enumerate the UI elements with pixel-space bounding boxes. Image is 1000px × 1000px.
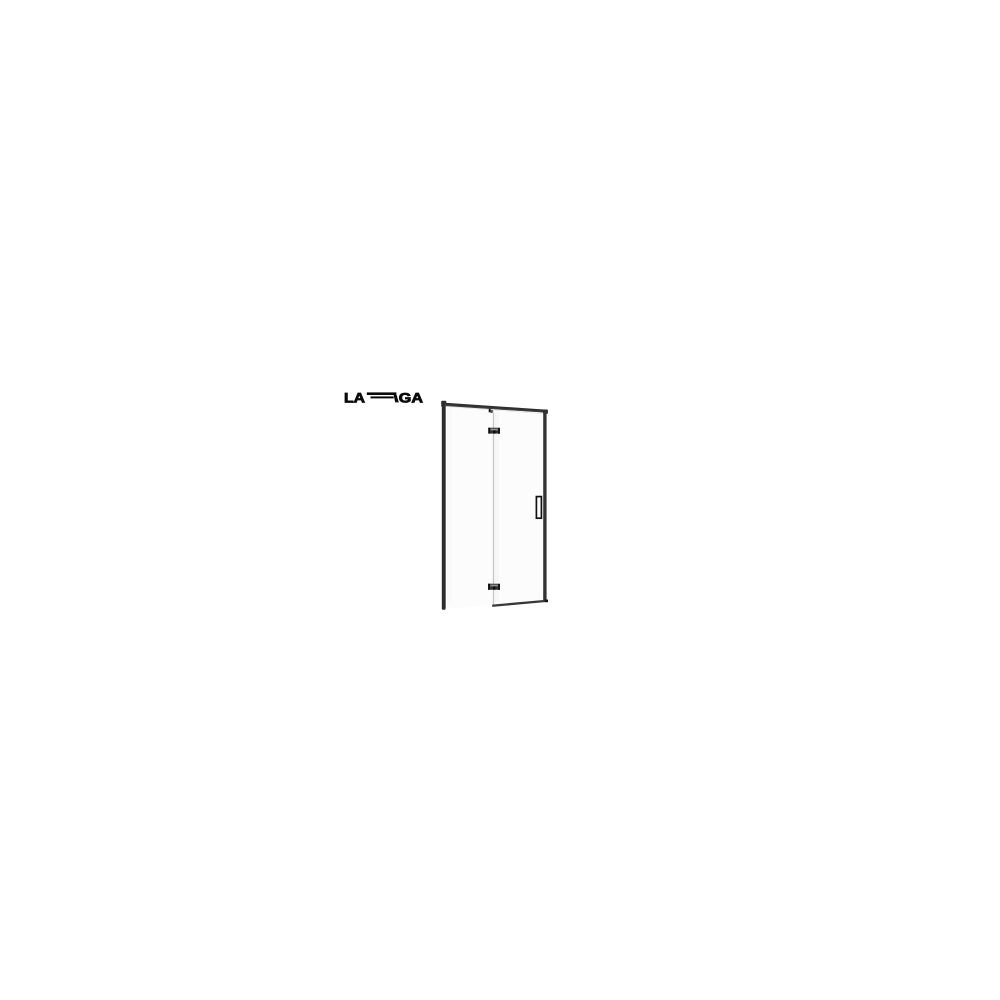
svg-text:LA: LA [344, 390, 365, 405]
svg-text:GA: GA [399, 390, 423, 405]
